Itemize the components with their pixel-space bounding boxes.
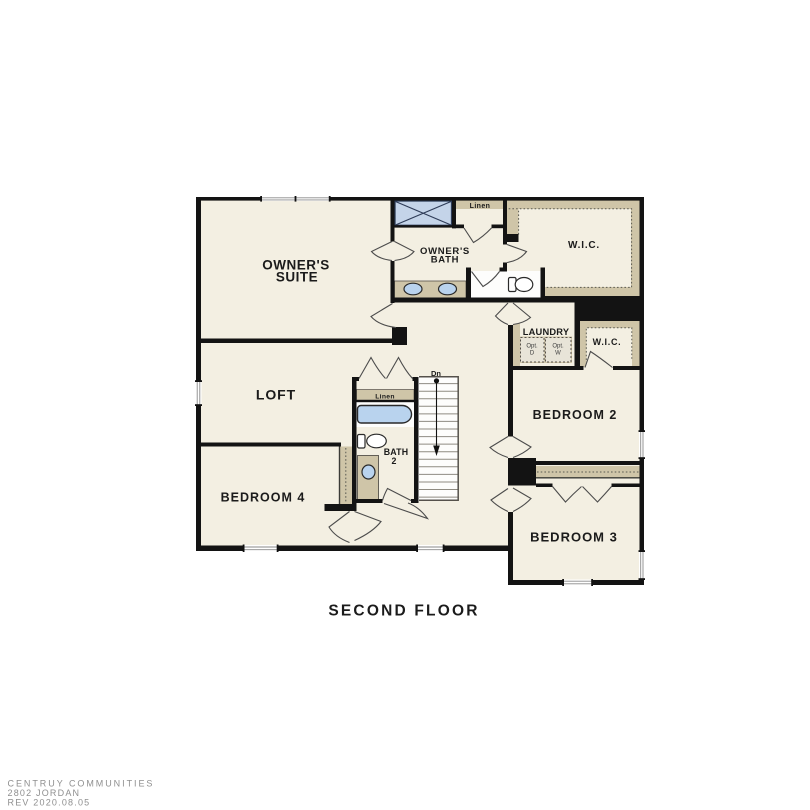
svg-text:2: 2 [391,456,396,466]
svg-text:BEDROOM 2: BEDROOM 2 [533,408,618,422]
svg-text:W: W [555,351,561,357]
svg-text:LAUNDRY: LAUNDRY [523,327,570,337]
svg-text:SECOND FLOOR: SECOND FLOOR [328,603,479,620]
svg-text:D: D [530,351,535,357]
svg-text:SUITE: SUITE [276,270,318,285]
svg-text:W.I.C.: W.I.C. [568,240,600,251]
svg-text:BEDROOM 4: BEDROOM 4 [221,491,306,505]
svg-text:BEDROOM 3: BEDROOM 3 [530,530,618,545]
svg-text:W.I.C.: W.I.C. [593,337,622,347]
svg-text:2802 JORDAN: 2802 JORDAN [8,788,81,798]
svg-text:REV 2020.08.05: REV 2020.08.05 [8,798,91,808]
svg-text:Opt.: Opt. [526,344,538,350]
svg-text:Linen: Linen [470,203,491,210]
svg-text:Opt.: Opt. [552,344,564,350]
svg-text:CENTRUY COMMUNITIES: CENTRUY COMMUNITIES [8,779,155,789]
svg-text:LOFT: LOFT [256,387,296,403]
svg-text:Dn: Dn [431,369,441,378]
svg-text:BATH: BATH [431,255,459,266]
svg-text:Linen: Linen [375,393,395,400]
